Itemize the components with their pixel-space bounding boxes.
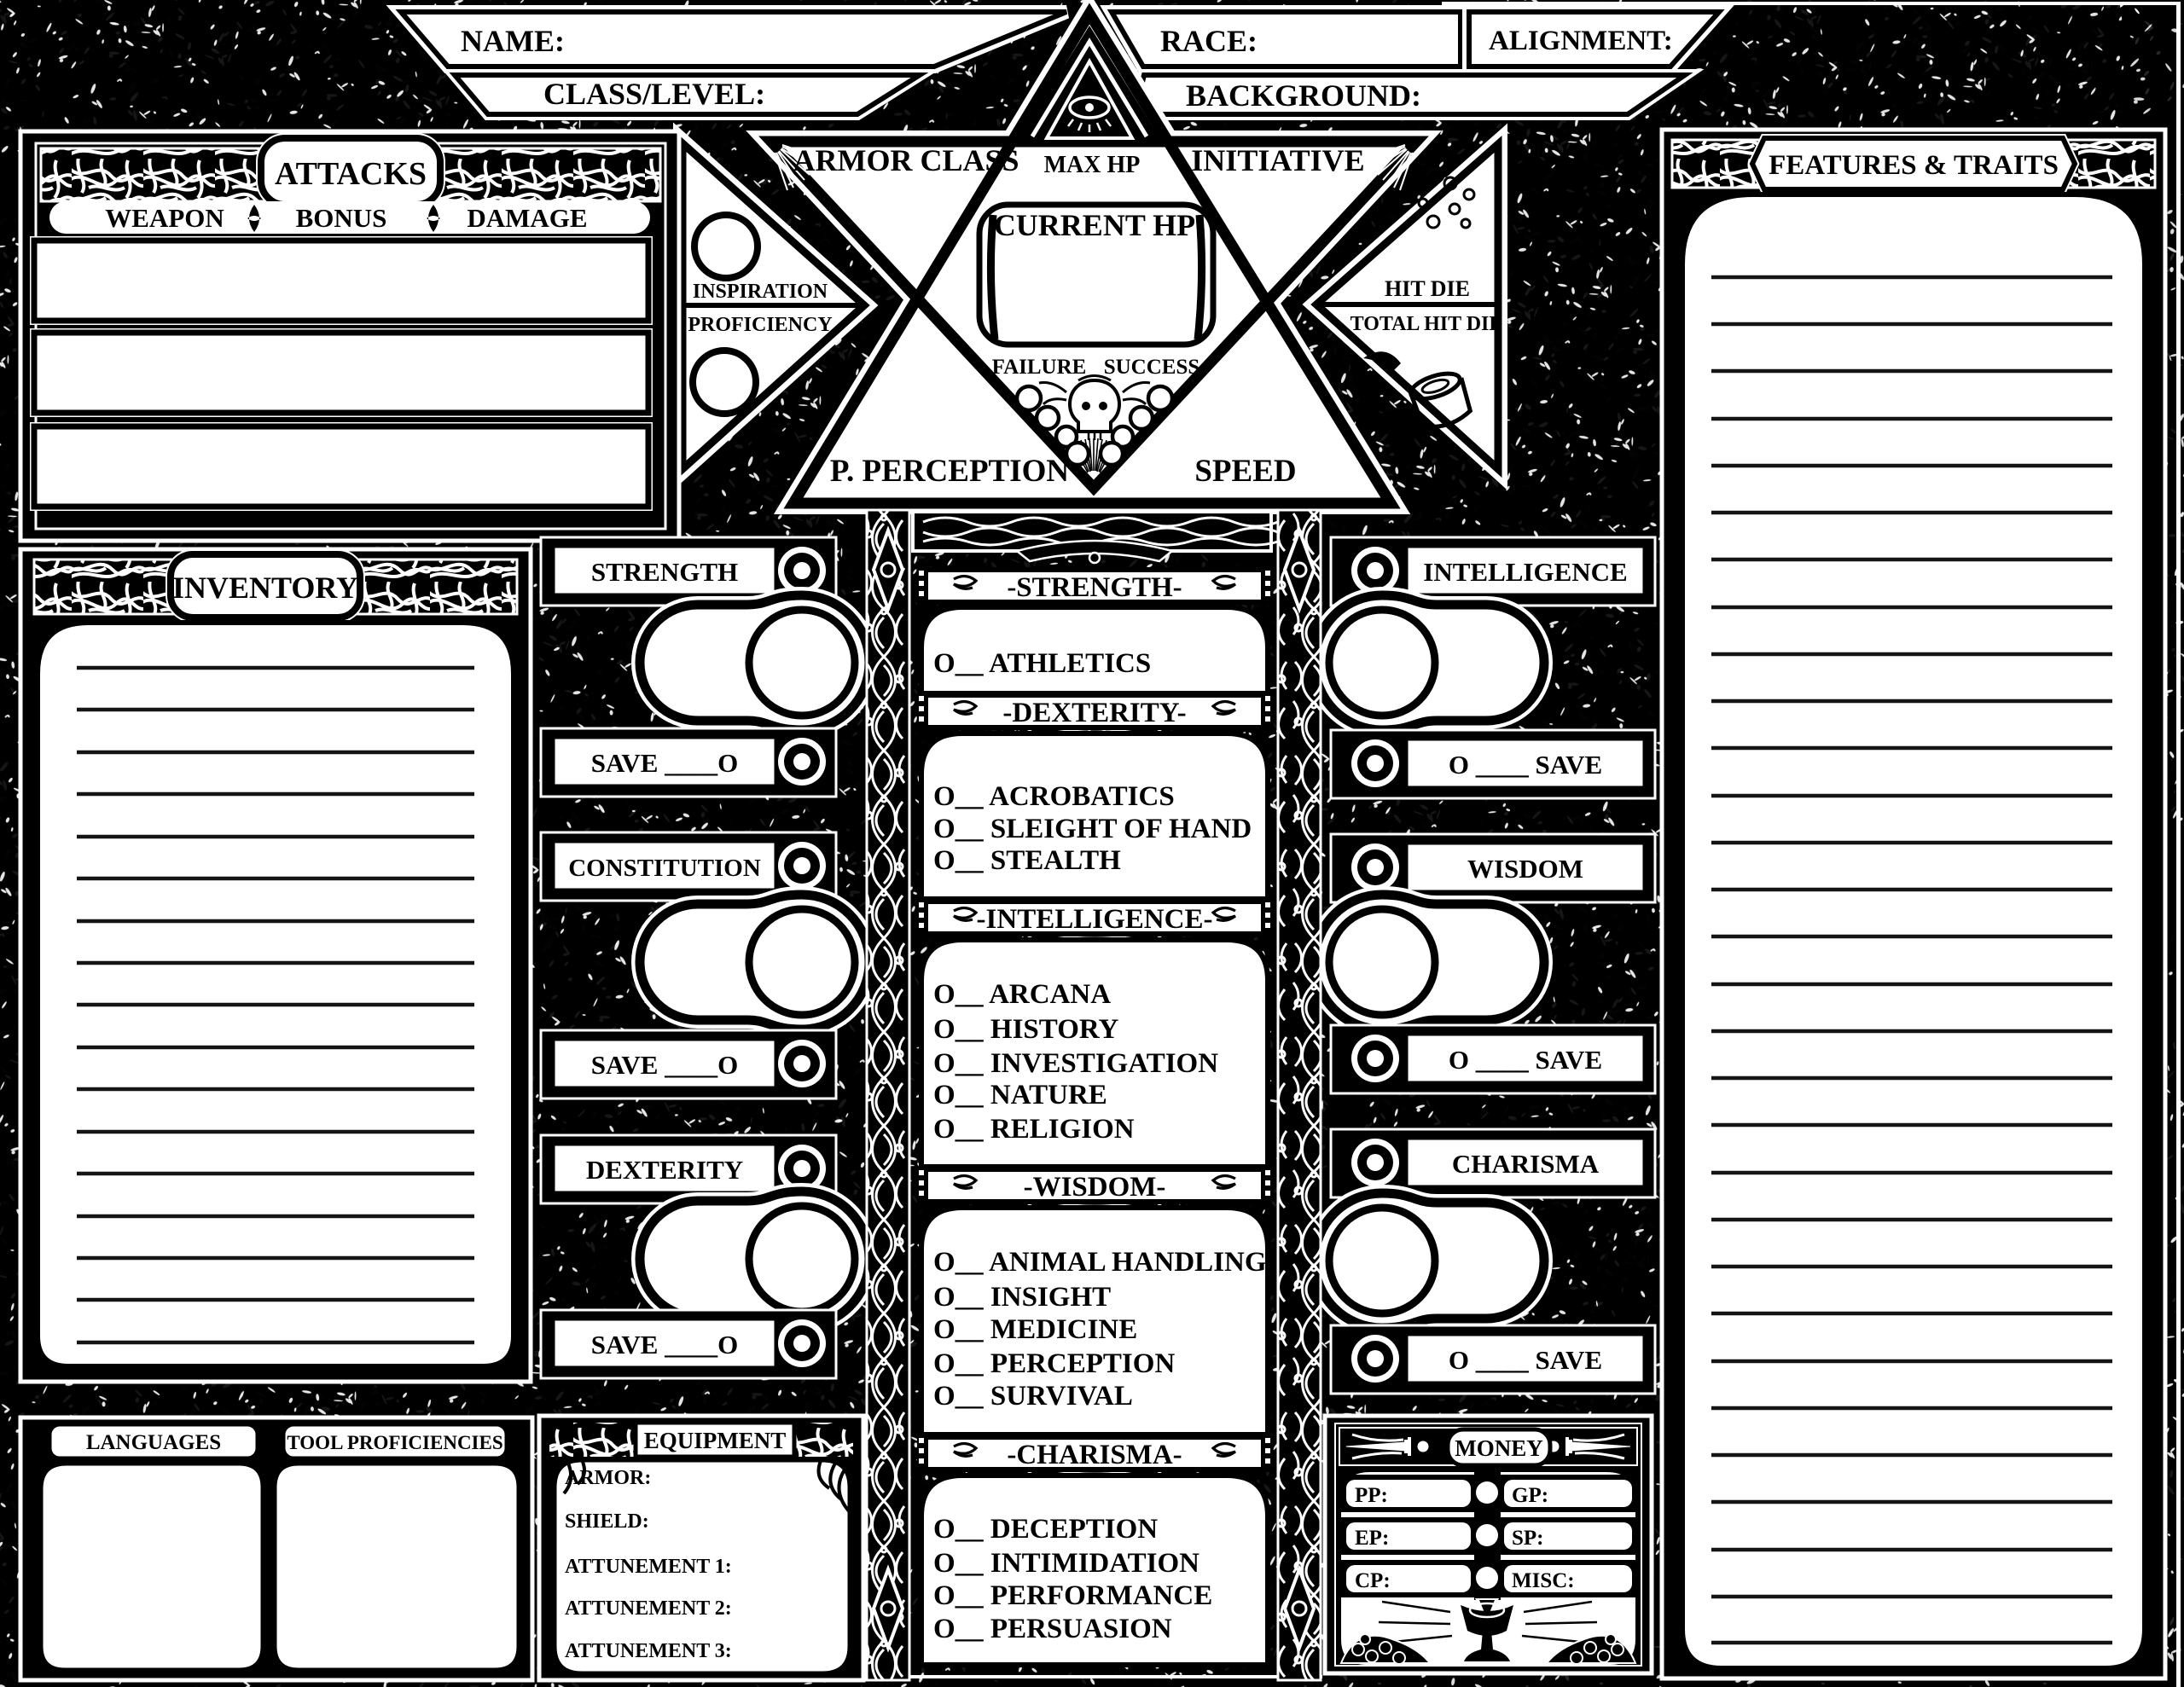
svg-text:TOTAL HIT DIE: TOTAL HIT DIE [1350, 313, 1503, 335]
svg-text:EQUIPMENT: EQUIPMENT [644, 1428, 787, 1453]
svg-text:ARMOR:: ARMOR: [565, 1467, 651, 1489]
svg-text:O__ NATURE: O__ NATURE [933, 1080, 1107, 1110]
svg-text:CLASS/LEVEL:: CLASS/LEVEL: [543, 77, 765, 111]
svg-text:CP:: CP: [1355, 1569, 1391, 1592]
svg-text:ATTACKS: ATTACKS [275, 156, 427, 192]
svg-text:WISDOM: WISDOM [1467, 854, 1583, 884]
svg-text:P. PERCEPTION: P. PERCEPTION [830, 454, 1070, 489]
svg-text:EP:: EP: [1355, 1527, 1389, 1550]
svg-text:SAVE ____O: SAVE ____O [591, 1050, 739, 1080]
svg-text:INSPIRATION: INSPIRATION [693, 281, 828, 303]
svg-text:CURRENT HP: CURRENT HP [994, 208, 1195, 242]
svg-text:FEATURES & TRAITS: FEATURES & TRAITS [1769, 150, 2059, 181]
svg-text:ATTUNEMENT 2:: ATTUNEMENT 2: [565, 1597, 732, 1620]
svg-text:O__ PERCEPTION: O__ PERCEPTION [933, 1348, 1175, 1379]
svg-text:INVENTORY: INVENTORY [172, 571, 358, 605]
svg-text:O__ MEDICINE: O__ MEDICINE [933, 1314, 1137, 1345]
svg-text:BONUS: BONUS [296, 203, 387, 233]
svg-text:ATTUNEMENT 3:: ATTUNEMENT 3: [565, 1640, 732, 1662]
svg-text:O__ SURVIVAL: O__ SURVIVAL [933, 1381, 1133, 1412]
svg-text:PP:: PP: [1355, 1484, 1388, 1507]
svg-text:INTELLIGENCE: INTELLIGENCE [1423, 557, 1627, 587]
svg-text:GP:: GP: [1512, 1484, 1548, 1507]
svg-text:SUCCESS: SUCCESS [1104, 356, 1200, 379]
svg-text:SAVE ____O: SAVE ____O [591, 748, 739, 778]
svg-text:RACE:: RACE: [1160, 24, 1258, 58]
svg-text:O__ INTIMIDATION: O__ INTIMIDATION [933, 1548, 1199, 1579]
svg-text:O__ INVESTIGATION: O__ INVESTIGATION [933, 1048, 1218, 1079]
svg-text:ARMOR CLASS: ARMOR CLASS [793, 143, 1019, 177]
svg-text:ALIGNMENT:: ALIGNMENT: [1489, 26, 1673, 56]
svg-text:O__ INSIGHT: O__ INSIGHT [933, 1282, 1111, 1313]
svg-text:TOOL PROFICIENCIES: TOOL PROFICIENCIES [287, 1432, 502, 1453]
svg-text:NAME:: NAME: [461, 24, 565, 58]
svg-text:O__ RELIGION: O__ RELIGION [933, 1114, 1135, 1145]
svg-text:SP:: SP: [1512, 1527, 1544, 1550]
svg-text:O ____ SAVE: O ____ SAVE [1449, 1345, 1602, 1375]
svg-text:WEAPON: WEAPON [105, 203, 224, 233]
svg-text:-CHARISMA-: -CHARISMA- [1007, 1440, 1182, 1470]
svg-text:HIT DIE: HIT DIE [1385, 276, 1470, 301]
svg-text:O__ SLEIGHT OF HAND: O__ SLEIGHT OF HAND [933, 814, 1252, 844]
svg-text:DAMAGE: DAMAGE [467, 203, 587, 233]
svg-text:BACKGROUND:: BACKGROUND: [1186, 78, 1421, 113]
svg-text:-INTELLIGENCE-: -INTELLIGENCE- [977, 904, 1213, 935]
svg-text:MISC:: MISC: [1512, 1569, 1575, 1592]
svg-text:O__ PERFORMANCE: O__ PERFORMANCE [933, 1580, 1212, 1611]
svg-text:CHARISMA: CHARISMA [1452, 1149, 1600, 1179]
svg-text:O__ PERSUASION: O__ PERSUASION [933, 1614, 1172, 1644]
svg-text:STRENGTH: STRENGTH [591, 557, 738, 587]
svg-text:INITIATIVE: INITIATIVE [1191, 143, 1364, 177]
svg-text:MONEY: MONEY [1455, 1435, 1543, 1461]
svg-text:FAILURE: FAILURE [992, 356, 1087, 379]
svg-text:DEXTERITY: DEXTERITY [586, 1155, 743, 1185]
svg-text:SAVE ____O: SAVE ____O [591, 1330, 739, 1359]
svg-text:CONSTITUTION: CONSTITUTION [568, 855, 761, 882]
svg-text:PROFICIENCY: PROFICIENCY [688, 314, 832, 336]
svg-text:-DEXTERITY-: -DEXTERITY- [1002, 698, 1186, 728]
svg-text:ATTUNEMENT 1:: ATTUNEMENT 1: [565, 1556, 732, 1578]
svg-text:O ____ SAVE: O ____ SAVE [1449, 750, 1602, 780]
svg-text:MAX HP: MAX HP [1044, 152, 1141, 178]
svg-text:O__ ACROBATICS: O__ ACROBATICS [933, 781, 1175, 812]
svg-text:SHIELD:: SHIELD: [565, 1510, 649, 1533]
svg-text:O__ STEALTH: O__ STEALTH [933, 845, 1121, 876]
svg-text:O__ DECEPTION: O__ DECEPTION [933, 1514, 1158, 1545]
svg-text:O__ ATHLETICS: O__ ATHLETICS [933, 648, 1151, 679]
svg-text:-STRENGTH-: -STRENGTH- [1007, 572, 1182, 603]
svg-text:O__ HISTORY: O__ HISTORY [933, 1014, 1119, 1045]
svg-text:O ____ SAVE: O ____ SAVE [1449, 1045, 1602, 1075]
svg-text:-WISDOM-: -WISDOM- [1024, 1172, 1166, 1203]
svg-text:LANGUAGES: LANGUAGES [86, 1431, 221, 1454]
svg-text:O__ ARCANA: O__ ARCANA [933, 979, 1111, 1010]
svg-text:SPEED: SPEED [1194, 454, 1296, 489]
svg-text:O__ ANIMAL HANDLING: O__ ANIMAL HANDLING [933, 1247, 1267, 1278]
